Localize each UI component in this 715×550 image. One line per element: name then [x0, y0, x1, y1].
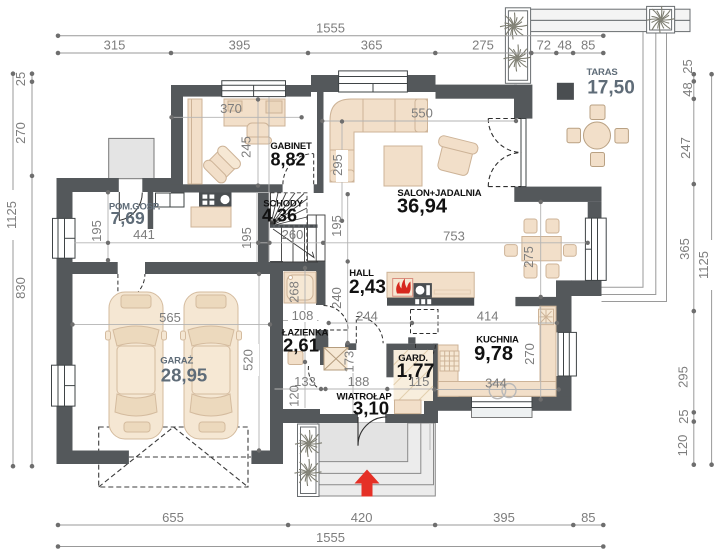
svg-text:753: 753: [443, 229, 465, 244]
svg-text:4,36: 4,36: [262, 206, 297, 226]
svg-text:565: 565: [159, 310, 181, 325]
svg-text:245: 245: [239, 136, 254, 158]
svg-text:268: 268: [287, 281, 302, 303]
svg-text:120: 120: [675, 435, 690, 457]
svg-text:1555: 1555: [316, 530, 345, 545]
svg-text:370: 370: [220, 101, 242, 116]
svg-text:830: 830: [13, 277, 28, 299]
svg-text:17,50: 17,50: [587, 78, 635, 99]
svg-text:365: 365: [677, 238, 692, 260]
svg-text:344: 344: [485, 376, 507, 391]
svg-text:315: 315: [104, 38, 126, 53]
svg-text:441: 441: [133, 227, 155, 242]
svg-text:520: 520: [241, 349, 256, 371]
svg-text:270: 270: [522, 343, 537, 365]
svg-text:1125: 1125: [696, 251, 711, 279]
svg-text:72: 72: [537, 38, 551, 53]
svg-text:260: 260: [282, 227, 304, 242]
svg-text:25: 25: [13, 72, 28, 86]
svg-text:295: 295: [676, 366, 691, 388]
svg-text:7,69: 7,69: [111, 208, 145, 228]
svg-text:295: 295: [330, 154, 345, 176]
svg-text:TARAS: TARAS: [586, 67, 617, 78]
svg-text:25: 25: [676, 409, 691, 423]
svg-text:365: 365: [361, 38, 383, 53]
svg-text:25: 25: [680, 59, 695, 73]
svg-text:395: 395: [229, 38, 251, 53]
svg-text:247: 247: [678, 137, 693, 159]
svg-text:1125: 1125: [4, 201, 19, 229]
svg-text:2,43: 2,43: [349, 277, 386, 298]
svg-text:28,95: 28,95: [161, 364, 208, 385]
svg-text:270: 270: [13, 122, 28, 144]
svg-text:9,78: 9,78: [474, 343, 513, 365]
svg-text:108: 108: [292, 308, 314, 323]
svg-text:85: 85: [581, 510, 595, 525]
svg-text:275: 275: [521, 246, 536, 268]
svg-text:550: 550: [411, 106, 433, 121]
svg-text:195: 195: [329, 215, 344, 237]
svg-text:8,82: 8,82: [270, 150, 305, 170]
svg-text:188: 188: [348, 374, 370, 389]
svg-text:195: 195: [239, 227, 254, 249]
svg-text:120: 120: [287, 385, 302, 407]
svg-text:173: 173: [342, 351, 357, 373]
svg-text:85: 85: [581, 38, 595, 53]
svg-text:275: 275: [472, 38, 494, 53]
svg-text:3,10: 3,10: [353, 398, 389, 419]
svg-text:1555: 1555: [316, 21, 345, 36]
svg-text:240: 240: [329, 287, 344, 309]
svg-text:195: 195: [89, 220, 104, 242]
svg-text:36,94: 36,94: [397, 196, 448, 218]
svg-text:414: 414: [477, 309, 499, 324]
svg-text:244: 244: [356, 309, 378, 324]
svg-text:1,77: 1,77: [397, 360, 435, 382]
svg-text:48: 48: [557, 38, 571, 53]
svg-text:48: 48: [680, 82, 695, 96]
svg-text:420: 420: [351, 510, 373, 525]
svg-text:655: 655: [162, 510, 184, 525]
svg-text:2,61: 2,61: [283, 335, 319, 356]
svg-text:395: 395: [493, 510, 515, 525]
